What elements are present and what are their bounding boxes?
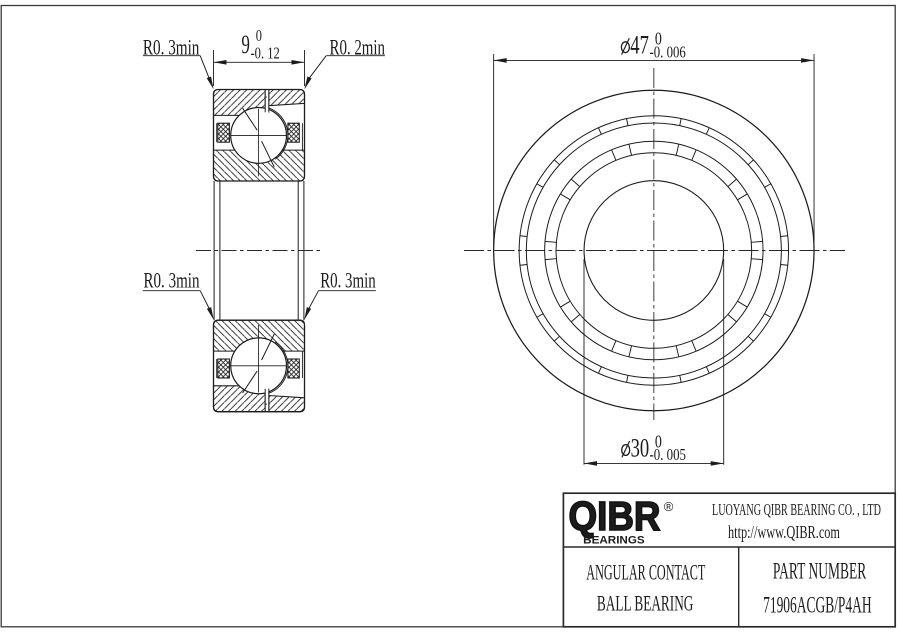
svg-text:0: 0 <box>256 26 262 45</box>
svg-text:http://www.QIBR.com: http://www.QIBR.com <box>728 522 840 542</box>
svg-text:9: 9 <box>241 30 250 59</box>
svg-text:®: ® <box>664 499 674 514</box>
svg-text:-0. 005: -0. 005 <box>650 445 687 464</box>
svg-text:R0. 3min: R0. 3min <box>144 267 200 292</box>
svg-text:71906ACGB/P4AH: 71906ACGB/P4AH <box>763 593 872 618</box>
svg-text:R0. 3min: R0. 3min <box>320 267 376 292</box>
svg-text:LUOYANG QIBR BEARING CO. , LTD: LUOYANG QIBR BEARING CO. , LTD <box>712 500 881 519</box>
svg-text:-0. 006: -0. 006 <box>650 42 686 61</box>
svg-text:PART NUMBER: PART NUMBER <box>773 558 867 583</box>
svg-text:ANGULAR CONTACT: ANGULAR CONTACT <box>586 560 705 585</box>
svg-text:BALL BEARING: BALL BEARING <box>597 590 694 615</box>
svg-text:47: 47 <box>630 31 649 60</box>
svg-text:BEARINGS: BEARINGS <box>583 535 645 547</box>
svg-text:-0. 12: -0. 12 <box>251 44 280 63</box>
svg-text:QIBR: QIBR <box>569 493 661 539</box>
svg-text:30: 30 <box>631 433 650 462</box>
